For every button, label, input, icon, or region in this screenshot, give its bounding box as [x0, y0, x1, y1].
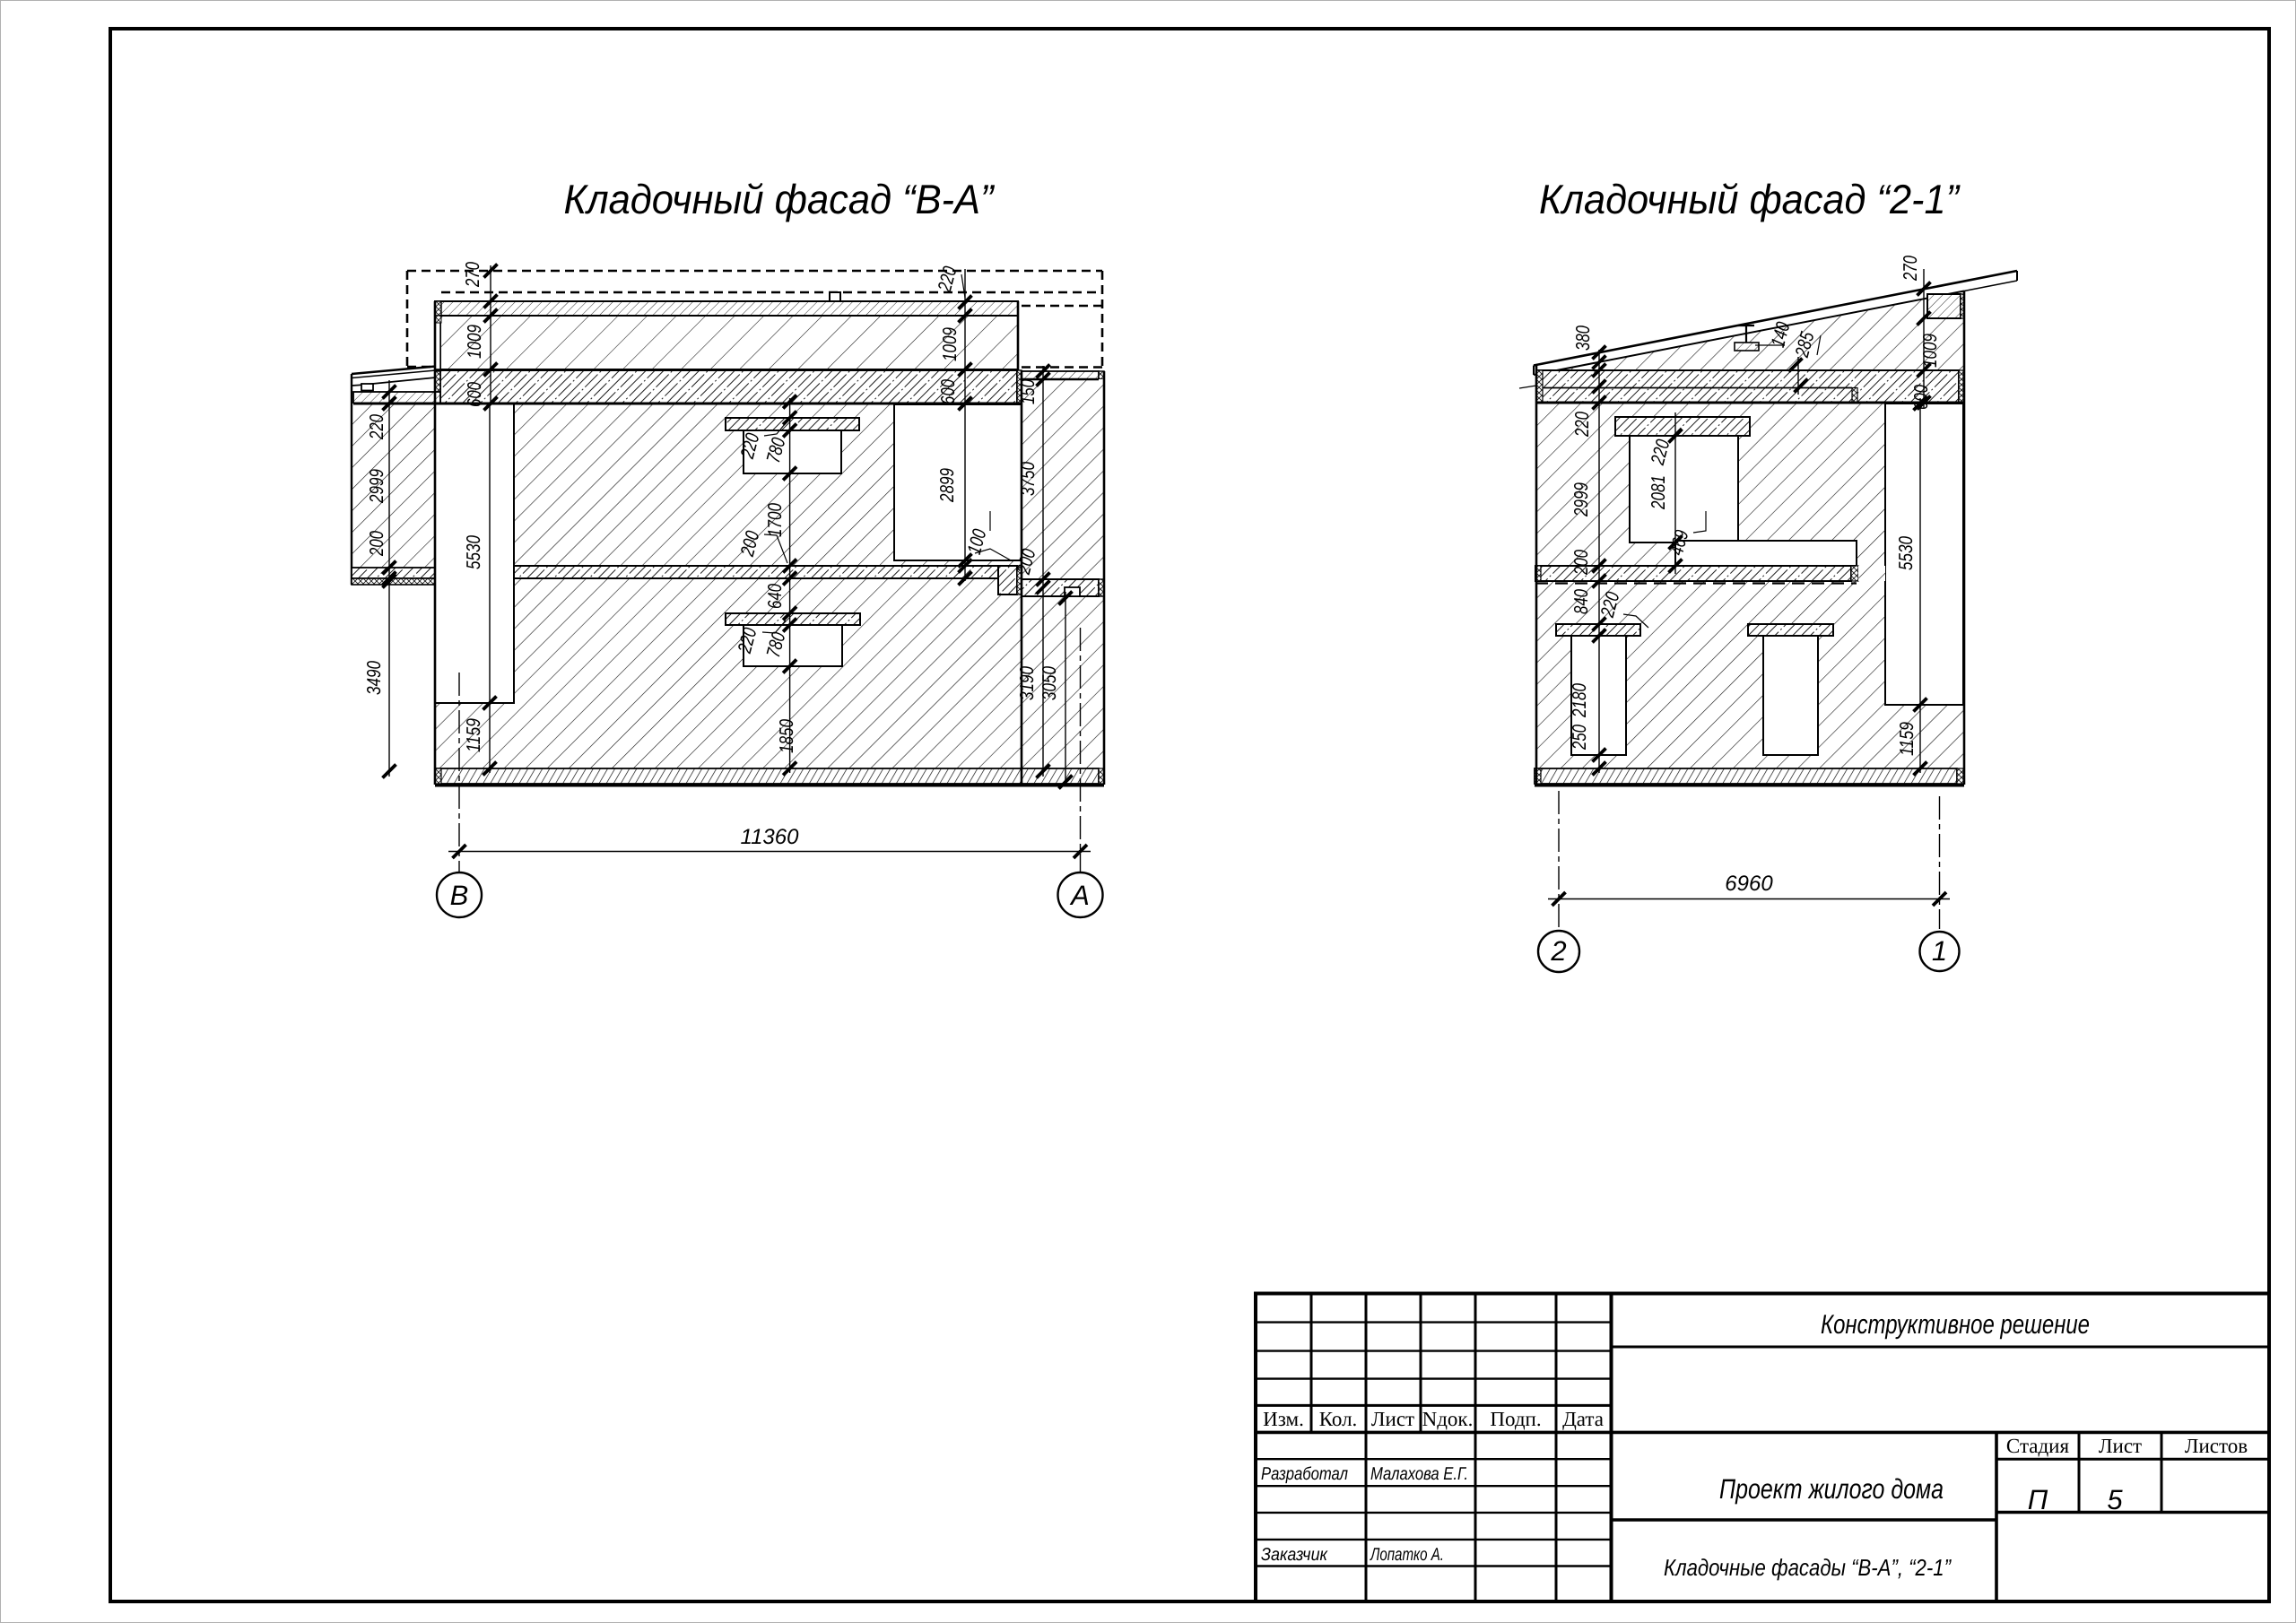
svg-text:600: 600: [1910, 385, 1932, 410]
svg-text:270: 270: [462, 262, 483, 288]
svg-text:2180: 2180: [1569, 683, 1590, 718]
svg-text:1: 1: [1932, 935, 1947, 967]
svg-text:Проект жилого дома: Проект жилого дома: [1719, 1473, 1944, 1505]
svg-text:Стадия: Стадия: [2006, 1435, 2070, 1457]
svg-text:270: 270: [1900, 256, 1921, 282]
svg-text:1009: 1009: [464, 325, 485, 359]
svg-text:1159: 1159: [463, 718, 484, 752]
svg-text:150: 150: [1017, 379, 1039, 404]
svg-text:250: 250: [1569, 725, 1590, 751]
svg-text:1850: 1850: [776, 719, 797, 753]
svg-text:600: 600: [464, 382, 485, 407]
svg-text:Заказчик: Заказчик: [1261, 1545, 1328, 1565]
svg-text:Кол.: Кол.: [1319, 1408, 1358, 1430]
svg-text:5: 5: [2107, 1484, 2123, 1515]
svg-text:600: 600: [937, 379, 959, 404]
svg-text:В: В: [450, 880, 469, 911]
svg-text:220: 220: [366, 414, 387, 440]
svg-text:Лист: Лист: [1371, 1408, 1414, 1430]
svg-text:5530: 5530: [463, 535, 484, 569]
svg-text:Кладочные фасады “В-А”, “2-1”: Кладочные фасады “В-А”, “2-1”: [1664, 1554, 1952, 1581]
svg-text:Подп.: Подп.: [1490, 1408, 1541, 1430]
svg-text:3750: 3750: [1017, 462, 1039, 496]
svg-text:3490: 3490: [363, 661, 385, 695]
svg-text:Дата: Дата: [1562, 1408, 1604, 1430]
svg-text:2999: 2999: [366, 469, 387, 504]
svg-text:2899: 2899: [936, 468, 958, 503]
svg-text:Конструктивное решение: Конструктивное решение: [1821, 1310, 2090, 1340]
svg-text:Лист: Лист: [2099, 1435, 2142, 1457]
svg-text:Разработал: Разработал: [1261, 1464, 1348, 1484]
svg-text:1700: 1700: [764, 503, 786, 537]
svg-text:Кладочный фасад “В-А”: Кладочный фасад “В-А”: [564, 176, 996, 222]
svg-text:380: 380: [1572, 325, 1594, 351]
svg-text:Кладочный фасад “2-1”: Кладочный фасад “2-1”: [1539, 176, 1961, 222]
svg-text:2999: 2999: [1570, 482, 1592, 517]
svg-text:1009: 1009: [939, 327, 961, 361]
svg-text:Изм.: Изм.: [1263, 1408, 1304, 1430]
svg-text:П: П: [2028, 1484, 2048, 1515]
svg-text:3190: 3190: [1016, 666, 1038, 700]
svg-text:5530: 5530: [1895, 536, 1917, 570]
svg-text:А: А: [1069, 880, 1090, 911]
svg-text:11360: 11360: [741, 825, 800, 849]
svg-text:1009: 1009: [1919, 334, 1941, 368]
svg-text:2081: 2081: [1648, 475, 1669, 510]
svg-text:Nдок.: Nдок.: [1422, 1408, 1474, 1430]
svg-text:640: 640: [764, 584, 786, 609]
svg-text:6960: 6960: [1725, 872, 1773, 896]
svg-text:Лопатко А.: Лопатко А.: [1369, 1545, 1444, 1565]
svg-text:200: 200: [366, 531, 387, 557]
svg-text:Малахова Е.Г.: Малахова Е.Г.: [1370, 1464, 1468, 1484]
svg-text:1159: 1159: [1896, 722, 1918, 756]
svg-text:200: 200: [1570, 550, 1592, 576]
svg-text:840: 840: [1570, 589, 1592, 614]
svg-text:220: 220: [1571, 412, 1593, 438]
svg-text:Листов: Листов: [2185, 1435, 2248, 1457]
svg-text:2: 2: [1550, 935, 1566, 967]
svg-text:3050: 3050: [1039, 666, 1060, 700]
